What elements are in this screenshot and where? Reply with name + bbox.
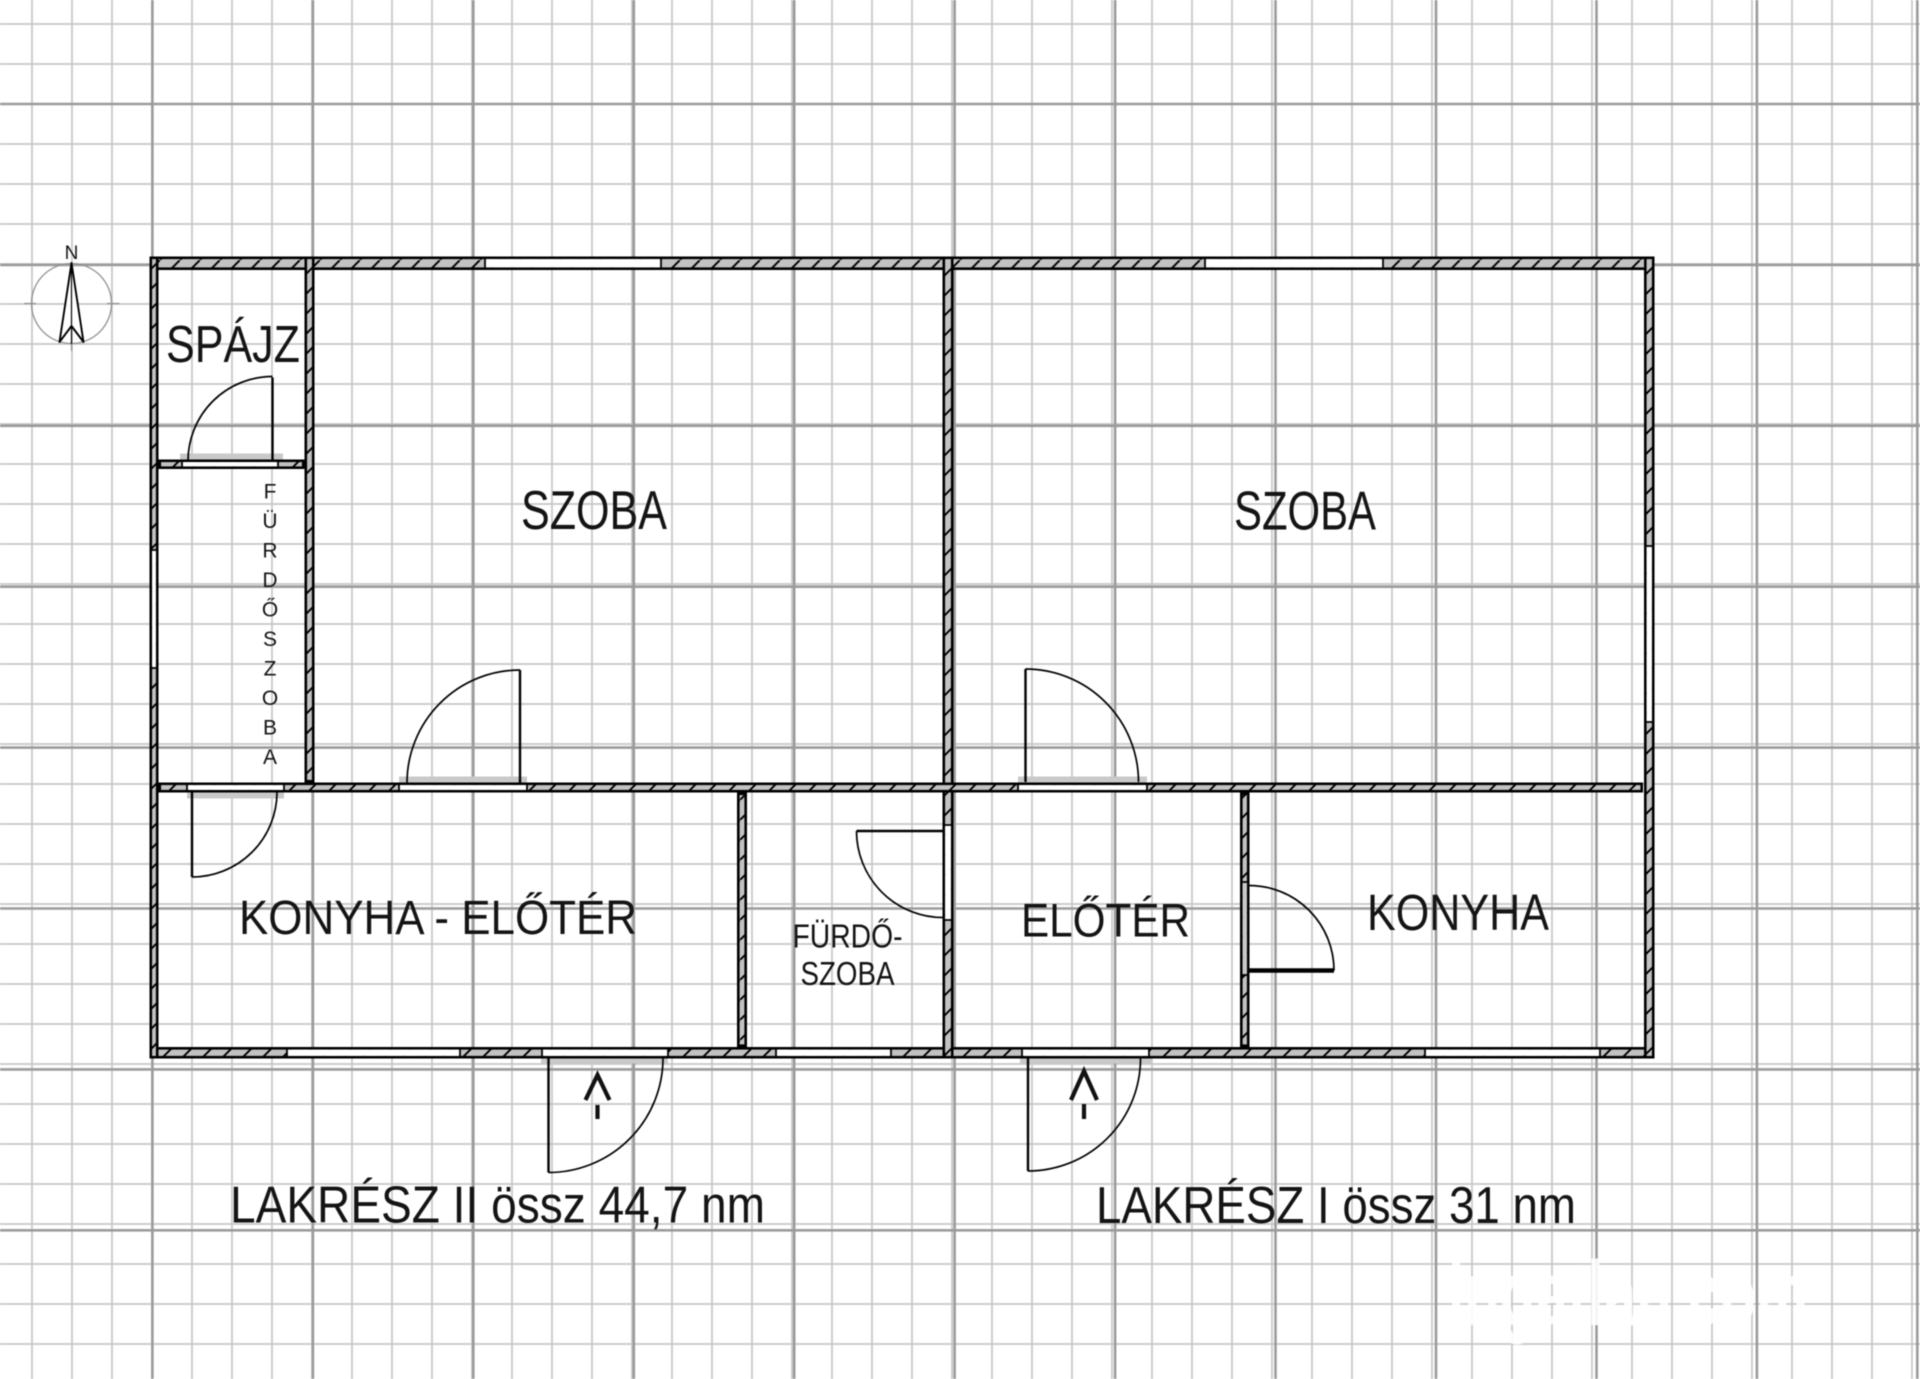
svg-text:SZOBA: SZOBA [521, 479, 667, 541]
svg-text:KONYHA - ELŐTÉR: KONYHA - ELŐTÉR [239, 892, 637, 945]
svg-text:SPÁJZ: SPÁJZ [166, 316, 300, 374]
svg-text:Ő: Ő [262, 599, 278, 622]
svg-text:FÜRDŐ-: FÜRDŐ- [793, 918, 903, 955]
svg-text:LAKRÉSZ II össz 44,7 nm: LAKRÉSZ II össz 44,7 nm [230, 1177, 765, 1235]
svg-text:N: N [65, 243, 79, 264]
svg-text:O: O [262, 687, 278, 710]
svg-text:ELŐTÉR: ELŐTÉR [1021, 894, 1190, 947]
svg-text:R: R [262, 540, 277, 563]
svg-text:SZOBA: SZOBA [801, 955, 895, 992]
svg-text:S: S [263, 628, 277, 651]
svg-text:KONYHA: KONYHA [1367, 884, 1549, 941]
svg-text:A: A [263, 746, 277, 769]
svg-text:B: B [263, 717, 277, 740]
svg-text:F: F [264, 481, 277, 504]
svg-text:Ü: Ü [262, 510, 277, 533]
svg-text:SZOBA: SZOBA [1234, 480, 1376, 542]
svg-text:Z: Z [264, 658, 277, 681]
svg-text:D: D [262, 569, 277, 592]
svg-text:ingatlan.com: ingatlan.com [1448, 1243, 1808, 1345]
svg-text:LAKRÉSZ I össz 31 nm: LAKRÉSZ I össz 31 nm [1096, 1177, 1576, 1235]
